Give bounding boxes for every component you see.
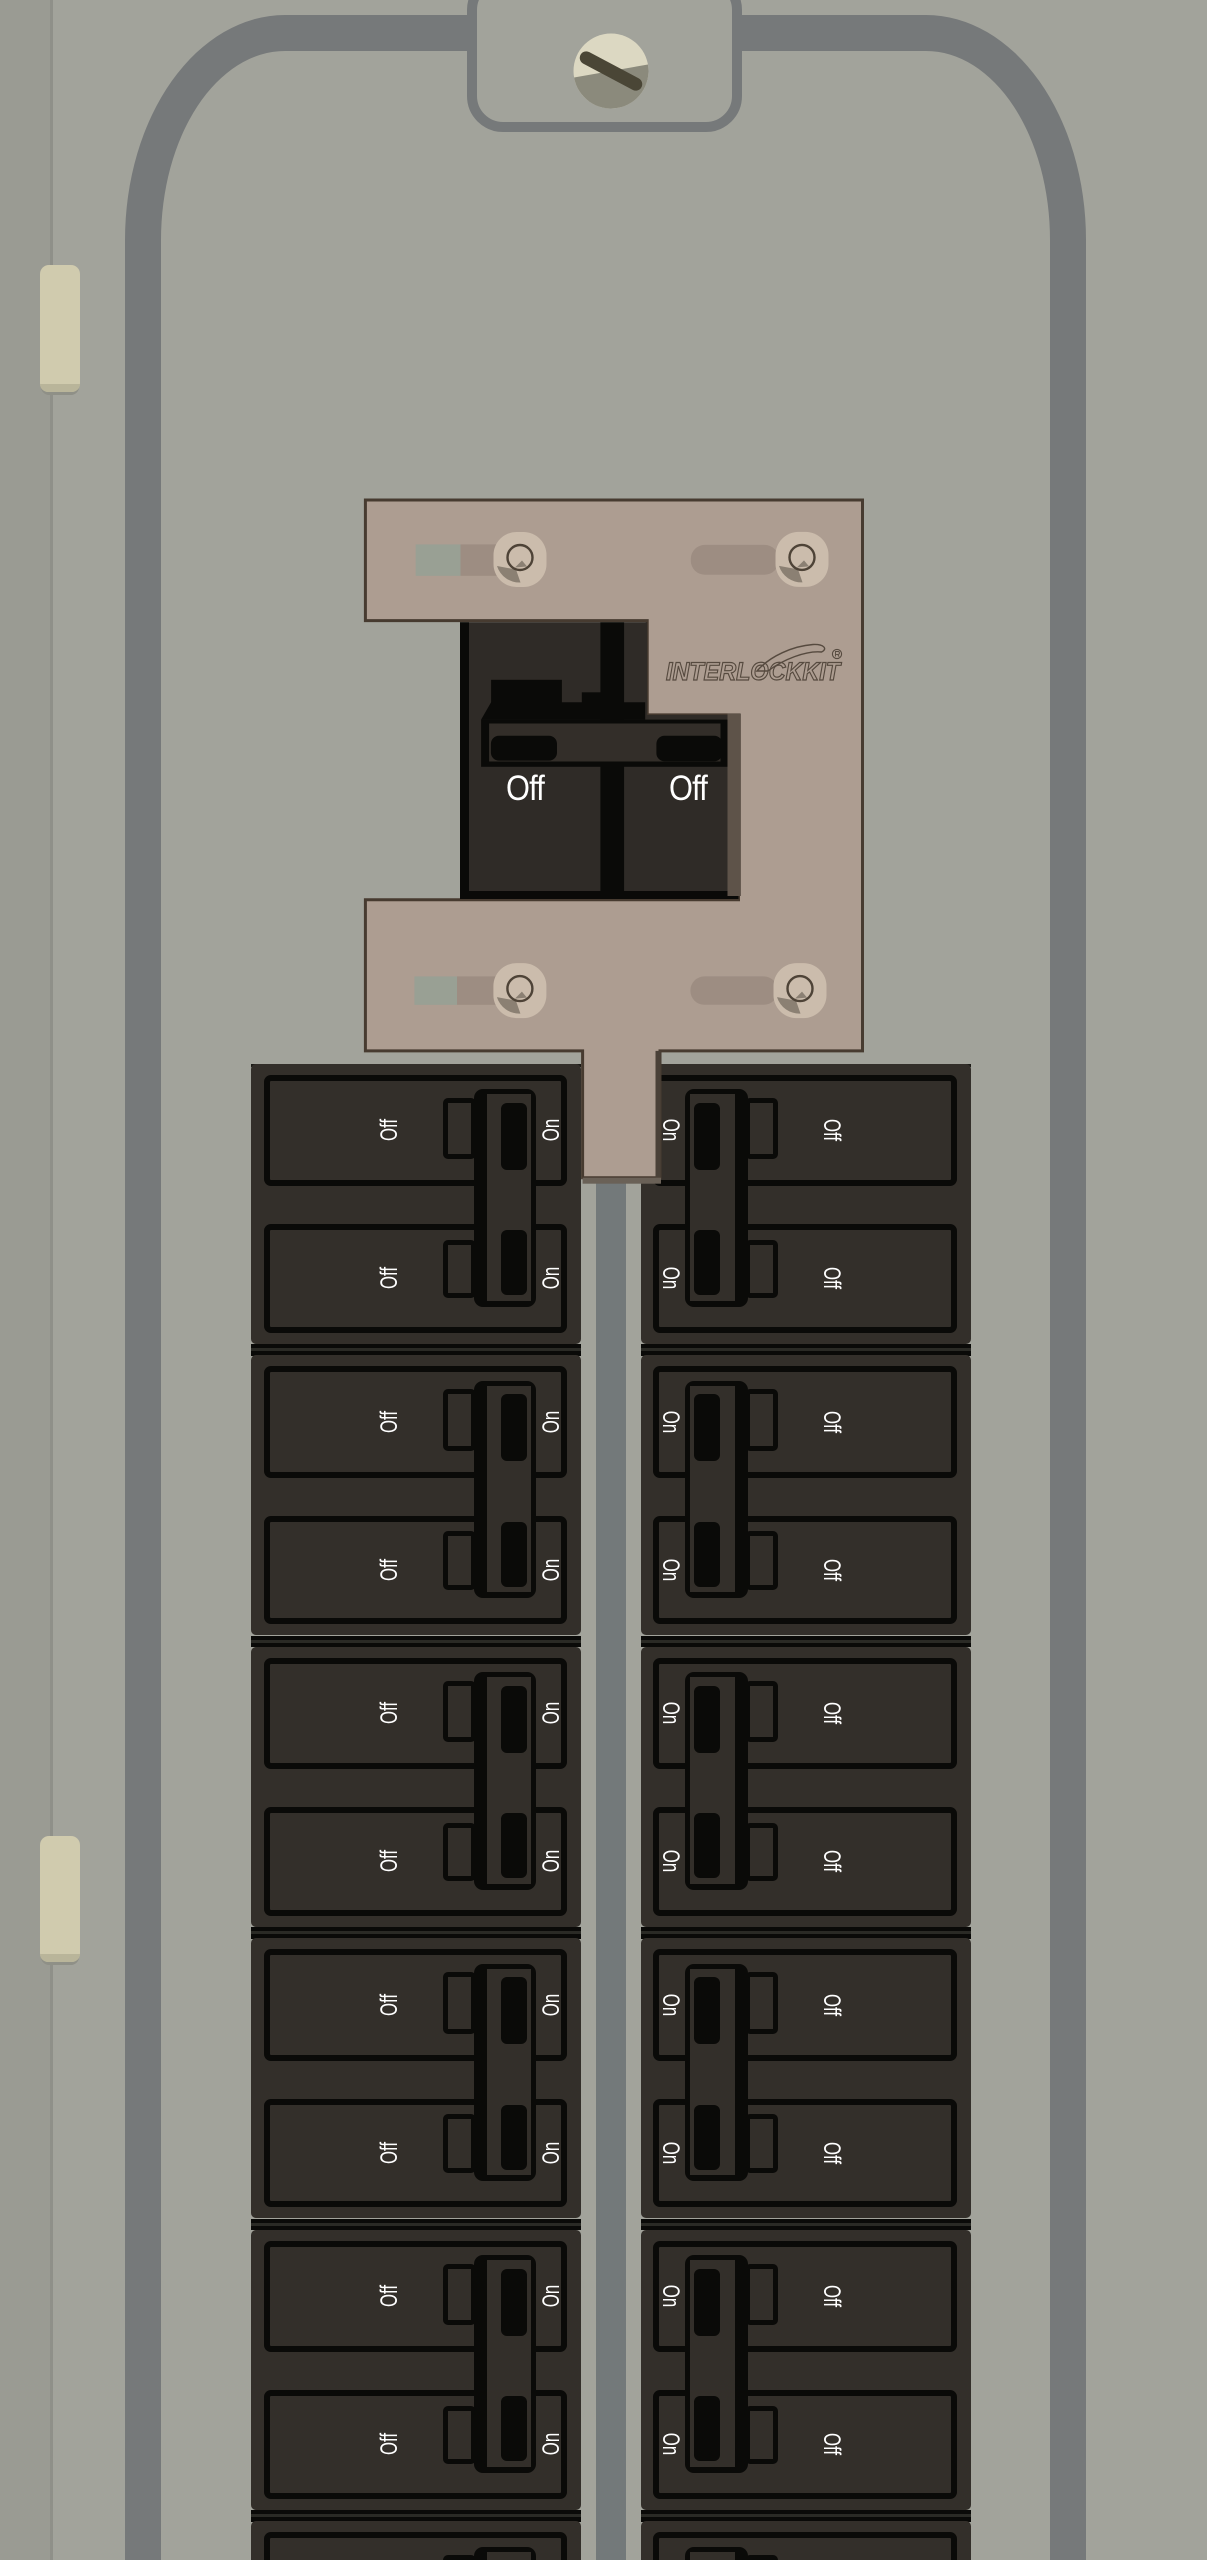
svg-text:INTERLOCKKIT: INTERLOCKKIT bbox=[666, 658, 843, 686]
